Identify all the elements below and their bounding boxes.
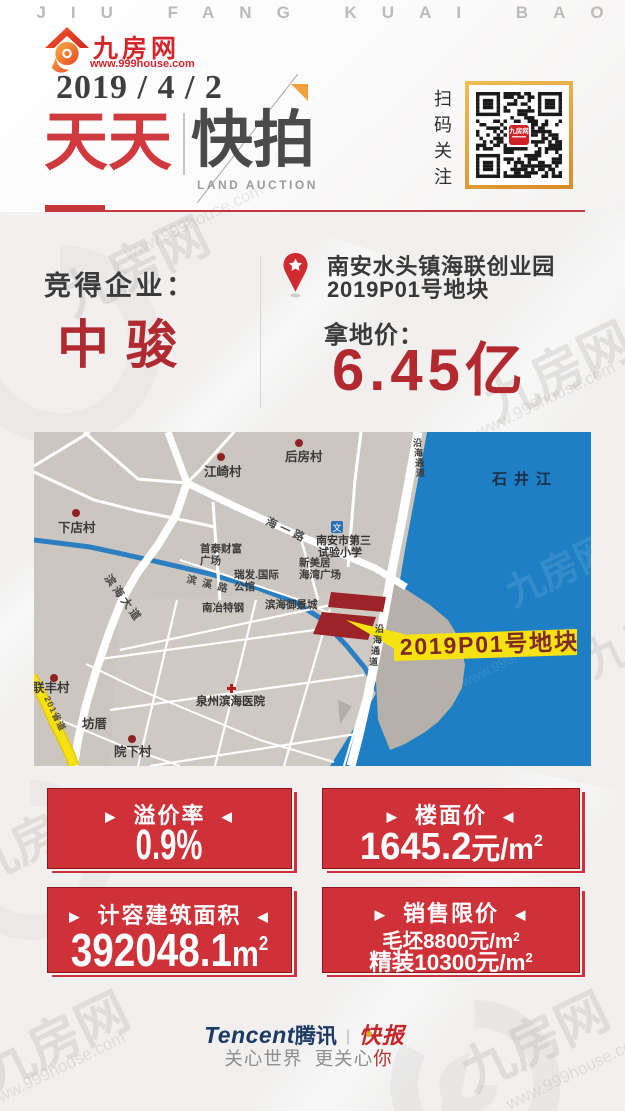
svg-text:海湾广场: 海湾广场 — [299, 568, 341, 581]
svg-text:文: 文 — [332, 522, 341, 533]
svg-text:新美居: 新美居 — [299, 556, 331, 569]
svg-text:联丰村: 联丰村 — [34, 680, 70, 695]
svg-text:后房村: 后房村 — [285, 449, 323, 464]
svg-text:泉州滨海医院: 泉州滨海医院 — [195, 694, 265, 708]
svg-text:院下村: 院下村 — [114, 744, 152, 759]
svg-text:公馆: 公馆 — [234, 580, 255, 593]
svg-text:坊厝: 坊厝 — [82, 716, 107, 731]
svg-text:广场: 广场 — [200, 554, 221, 567]
svg-text:石井江: 石井江 — [491, 470, 558, 488]
svg-text:南安市第三: 南安市第三 — [316, 533, 371, 547]
svg-text:江崎村: 江崎村 — [204, 464, 242, 479]
svg-text:下店村: 下店村 — [58, 520, 96, 535]
svg-text:首泰财富: 首泰财富 — [200, 542, 242, 555]
svg-text:滨海御景城: 滨海御景城 — [265, 598, 318, 611]
svg-text:南冶特钢: 南冶特钢 — [202, 601, 244, 614]
svg-text:九房网: 九房网 — [508, 126, 529, 135]
svg-text:瑞发.国际: 瑞发.国际 — [234, 568, 279, 581]
